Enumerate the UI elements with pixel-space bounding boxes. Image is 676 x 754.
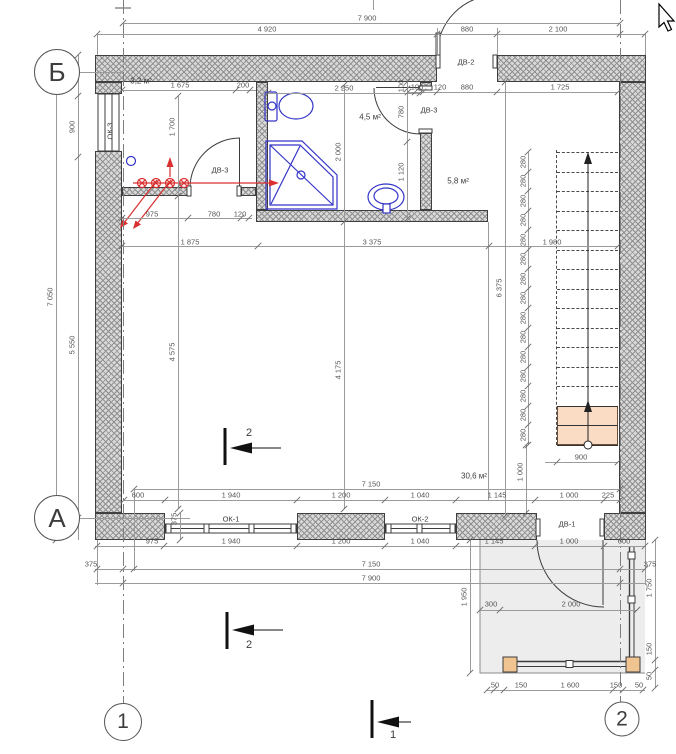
dim-label: 280 <box>519 175 527 188</box>
dim-line <box>123 23 620 24</box>
dim-label: 5 550 <box>68 336 76 355</box>
dim-label: 100 <box>411 83 424 91</box>
door-label-dv3-room: ДВ-3 <box>212 166 229 175</box>
room-label-58: 5,8 м² <box>447 177 469 186</box>
dim-label: 375 <box>644 560 657 568</box>
window-label-ok3: ОК-3 <box>106 123 115 140</box>
dim-label: 1 675 <box>171 81 190 89</box>
porch-picket-right-2 <box>628 596 635 603</box>
dim-label: 4 175 <box>334 361 342 380</box>
dim-line <box>95 583 645 584</box>
dim-label: 900 <box>68 121 76 134</box>
dim-label: 120 <box>434 83 447 91</box>
dim-label: 2 100 <box>549 25 568 33</box>
dim-label: 2 000 <box>562 600 581 608</box>
dim-label: 975 <box>146 537 159 545</box>
dim-label: 780 <box>208 210 221 218</box>
dim-label: 280 <box>519 214 527 227</box>
dim-label: 150 <box>610 681 623 689</box>
riser-circle <box>127 157 136 166</box>
dim-label: 225 <box>602 491 615 499</box>
dim-label: 1 200 <box>332 537 351 545</box>
porch-picket-bottom <box>566 661 573 668</box>
dim-label: 1 875 <box>181 238 200 246</box>
dim-label: 120 <box>234 210 247 218</box>
axis-line-1 <box>123 0 124 705</box>
dim-label: 7 150 <box>362 560 381 568</box>
porch-post-right <box>626 657 640 672</box>
pipe-arrow-up <box>167 157 174 167</box>
dim-label: 780 <box>397 106 405 119</box>
section-label-1: 1 <box>390 729 396 741</box>
dim-label: 280 <box>519 253 527 266</box>
dim-label: 50 <box>645 672 653 680</box>
dim-line <box>407 82 408 219</box>
dim-label: 200 <box>237 81 250 89</box>
room-label-306: 30,6 м² <box>461 472 487 481</box>
dim-label: 1 750 <box>645 579 653 598</box>
dim-label: 1 940 <box>222 537 241 545</box>
dim-line <box>505 82 506 516</box>
window-label-ok2: ОК-2 <box>412 515 429 524</box>
dim-label: 1 725 <box>551 83 570 91</box>
toilet-fixture <box>265 92 313 121</box>
dim-label: 1 950 <box>460 588 468 607</box>
axis-label: 2 <box>616 707 628 731</box>
dim-label: 50 <box>491 681 499 689</box>
dim-label: 280 <box>519 233 527 246</box>
dim-label: 280 <box>519 292 527 305</box>
dim-line <box>178 96 179 509</box>
dim-label: 280 <box>519 272 527 285</box>
section-label-2-lower: 2 <box>246 639 252 651</box>
dim-label: 280 <box>519 428 527 441</box>
dim-label: 280 <box>519 370 527 383</box>
dim-label: 1 145 <box>488 491 507 499</box>
section-mark-2-upper <box>224 428 282 465</box>
dim-label: 6 375 <box>495 279 503 298</box>
dim-label: 300 <box>485 600 498 608</box>
dim-label: 1 200 <box>332 491 351 499</box>
dim-label: 7 050 <box>46 288 54 307</box>
dim-line <box>95 569 645 570</box>
porch-post-left <box>503 657 517 672</box>
dim-line <box>180 513 181 540</box>
pipe-arrow-right <box>269 180 279 187</box>
dim-line <box>79 72 123 73</box>
mouse-cursor-icon[interactable] <box>659 4 674 31</box>
dim-line <box>97 34 98 55</box>
dim-label: 975 <box>146 210 159 218</box>
dim-line <box>344 85 345 509</box>
axis-line-2 <box>620 0 621 702</box>
axis-label: 1 <box>117 710 129 734</box>
shower-fixture <box>266 141 337 209</box>
room-label-45: 4,5 м² <box>359 113 381 122</box>
dim-label: 1 940 <box>222 491 241 499</box>
dim-line <box>408 92 618 93</box>
window-ok2-symbol <box>385 524 456 533</box>
dim-line <box>78 55 79 540</box>
section-label-2-upper: 2 <box>246 427 252 439</box>
dim-line <box>56 55 57 540</box>
dim-line <box>134 489 620 490</box>
dim-label: 100 <box>397 80 405 93</box>
dim-label: 2 250 <box>335 84 354 92</box>
pipe-arrow-diag-2 <box>133 221 141 230</box>
axis-label: Б <box>48 57 65 88</box>
dim-line <box>95 546 645 547</box>
dim-line <box>528 152 529 445</box>
dim-label: 1 120 <box>397 163 405 182</box>
dim-label: 1 040 <box>411 491 430 499</box>
section-mark-2-lower <box>226 612 284 649</box>
dim-label: 1 145 <box>485 537 504 545</box>
dim-line <box>480 610 637 611</box>
dim-label: 7 900 <box>362 574 381 582</box>
dim-line <box>526 445 527 513</box>
dim-label: 7 900 <box>358 14 377 22</box>
dim-label: 50 <box>635 681 643 689</box>
dim-label: 7 150 <box>362 480 381 488</box>
axis-bubble-1: 1 <box>104 703 142 741</box>
window-label-ok1: ОК-1 <box>223 515 240 524</box>
dim-label: 600 <box>618 537 631 545</box>
room-label-32: 3,2 м² <box>130 77 152 86</box>
dim-line <box>124 500 620 501</box>
porch-picket-right-1 <box>628 552 635 559</box>
dim-label: 150 <box>515 681 528 689</box>
door-label-dv1: ДВ-1 <box>559 520 576 529</box>
dim-label: 880 <box>461 25 474 33</box>
pipe-arrow-diag-1 <box>120 220 128 229</box>
door-label-dv2: ДВ-2 <box>458 58 475 67</box>
sink-fixture <box>368 184 404 213</box>
dim-line <box>373 0 374 10</box>
dim-line <box>97 34 645 35</box>
door-label-dv3-bath: ДВ-3 <box>421 106 438 115</box>
dim-label: 4 575 <box>168 343 176 362</box>
dim-label: 280 <box>519 409 527 422</box>
dim-label: 280 <box>519 194 527 207</box>
dim-line <box>470 540 471 673</box>
dim-label: 1 040 <box>411 537 430 545</box>
dim-label: 150 <box>645 643 653 656</box>
axis-bubble-2: 2 <box>605 702 640 737</box>
dim-label: 1 000 <box>560 537 579 545</box>
dim-label: 375 <box>85 560 98 568</box>
axis-bubble-a: А <box>34 495 80 541</box>
dim-label: 1 700 <box>168 118 176 137</box>
dim-label: 280 <box>519 389 527 402</box>
dim-label: 1 980 <box>543 238 562 246</box>
dim-label: 280 <box>519 350 527 363</box>
dim-label: 1 600 <box>561 681 580 689</box>
dim-label: 900 <box>575 453 588 461</box>
window-ok1-symbol <box>165 524 297 533</box>
dim-line <box>134 489 135 571</box>
dim-label: 280 <box>519 331 527 344</box>
dim-label: 600 <box>132 491 145 499</box>
stair-arrow <box>584 152 592 449</box>
dim-label: 280 <box>519 311 527 324</box>
dim-label: 880 <box>461 83 474 91</box>
dim-label: 375 <box>170 513 178 526</box>
dim-label: 280 <box>519 155 527 168</box>
dim-label: 4 920 <box>258 25 277 33</box>
dim-line <box>645 34 646 55</box>
dim-label: 3 375 <box>363 238 382 246</box>
axis-label: А <box>48 503 65 534</box>
dim-line <box>488 222 489 500</box>
dim-label: 2 000 <box>334 143 342 162</box>
floor-plan-canvas: Б А 1 2 3,2 м² 4,5 м² 5,8 м² 30,6 м² ОК-… <box>0 0 676 754</box>
dim-label: 1 000 <box>516 463 524 482</box>
axis-bubble-b: Б <box>34 49 80 95</box>
dim-label: 1 000 <box>560 491 579 499</box>
